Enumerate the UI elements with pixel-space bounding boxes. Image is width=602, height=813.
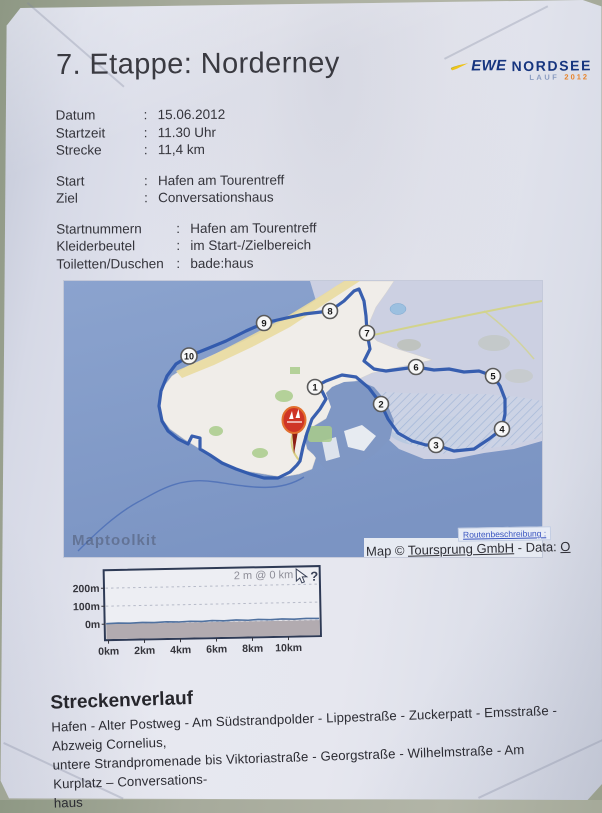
info-value: 11.30 Uhr: [158, 123, 216, 141]
route-marker-9: 9: [257, 316, 272, 331]
info-row-startzeit: Startzeit : 11.30 Uhr: [56, 123, 316, 142]
logo-brand: EWE: [471, 57, 507, 74]
info-table: Datum : 15.06.2012 Startzeit : 11.30 Uhr…: [56, 105, 317, 272]
info-row-strecke: Strecke : 11,4 km: [56, 140, 316, 159]
info-row-ziel: Ziel : Conversationshaus: [56, 188, 316, 207]
swoosh-icon: [450, 58, 469, 74]
info-value: bade:haus: [190, 254, 253, 272]
toursprung-link[interactable]: Toursprung GmbH: [408, 540, 515, 558]
x-axis-label-6km: 6km: [206, 643, 227, 655]
data-source-link[interactable]: O: [560, 539, 570, 554]
info-colon: :: [144, 141, 158, 159]
marker-number: 4: [499, 425, 505, 436]
info-row-startnummern: Startnummern : Hafen am Tourentreff: [56, 219, 316, 238]
route-marker-4: 4: [495, 422, 510, 437]
info-colon: :: [144, 172, 158, 190]
marker-number: 6: [413, 363, 418, 374]
info-label: Datum: [56, 106, 144, 124]
info-label: Strecke: [56, 141, 144, 159]
route-marker-2: 2: [374, 397, 389, 412]
marker-number: 5: [490, 372, 496, 383]
info-label: Toiletten/Duschen: [56, 255, 176, 273]
info-value: Hafen am Tourentreff: [190, 219, 316, 237]
route-marker-6: 6: [409, 360, 424, 375]
info-value: 11,4 km: [158, 141, 205, 159]
route-marker-10: 10: [181, 348, 197, 364]
attribution-prefix: Map ©: [366, 543, 408, 559]
marker-number: 3: [433, 441, 438, 452]
marker-number: 7: [364, 329, 369, 340]
info-row-datum: Datum : 15.06.2012: [56, 105, 316, 124]
info-colon: :: [176, 254, 190, 272]
info-label: Kleiderbeutel: [56, 237, 176, 255]
x-axis-label-10km: 10km: [275, 642, 302, 655]
dune-patch: [505, 369, 533, 383]
route-map: 1 2 3 4 5 6 7 8 9 10 Maptoolkit: [64, 281, 542, 557]
park-green: [308, 426, 332, 442]
info-value: Hafen am Tourentreff: [158, 171, 284, 189]
route-marker-5: 5: [486, 369, 501, 384]
info-row-kleiderbeutel: Kleiderbeutel : im Start-/Zielbereich: [56, 236, 316, 255]
info-label: Ziel: [56, 189, 144, 207]
y-axis-label-100m: 100m: [73, 601, 100, 614]
x-axis-label-4km: 4km: [170, 644, 191, 656]
route-marker-3: 3: [429, 438, 444, 453]
marker-number: 10: [184, 352, 194, 362]
route-marker-1: 1: [308, 380, 323, 395]
chart-hover-readout: 2 m @ 0 km: [234, 569, 294, 582]
marker-number: 2: [378, 400, 383, 411]
help-icon: ?: [310, 569, 318, 584]
info-label: Startnummern: [56, 220, 176, 238]
info-colon: :: [144, 189, 158, 207]
marker-number: 9: [261, 319, 266, 330]
page-title: 7. Etappe: Norderney: [56, 47, 340, 82]
info-colon: :: [144, 106, 158, 124]
info-label: Startzeit: [56, 124, 144, 142]
map-watermark: Maptoolkit: [72, 532, 157, 549]
pond: [390, 304, 406, 315]
logo-name: NORDSEE: [511, 57, 592, 74]
attribution-middle: - Data:: [514, 539, 561, 555]
marker-number: 8: [327, 307, 332, 318]
info-value: im Start-/Zielbereich: [190, 236, 311, 254]
info-colon: :: [176, 219, 190, 237]
dune-patch: [397, 339, 421, 351]
info-value: Conversationshaus: [158, 189, 274, 207]
x-axis-label-8km: 8km: [242, 643, 263, 655]
park-green: [209, 426, 223, 436]
park-green: [290, 367, 300, 374]
dune-patch: [478, 335, 510, 351]
route-marker-8: 8: [323, 304, 338, 319]
park-green: [252, 448, 268, 458]
info-colon: :: [176, 237, 190, 255]
info-colon: :: [144, 124, 158, 142]
info-label: Start: [56, 172, 144, 190]
logo-lauf: LAUF: [529, 73, 559, 82]
route-marker-7: 7: [360, 326, 375, 341]
streckenverlauf-section: Streckenverlauf Hafen - Alter Postweg - …: [50, 675, 574, 812]
logo-year: 2012: [564, 72, 589, 81]
park-green: [275, 390, 293, 402]
elevation-chart: 200m 100m 0m 0km 2km 4km 6km 8km 10km 2 …: [59, 563, 327, 664]
y-axis-label-0m: 0m: [85, 619, 100, 631]
ewe-nordsee-lauf-logo: EWE NORDSEE LAUF 2012: [450, 56, 592, 82]
x-axis-label-0km: 0km: [98, 645, 119, 657]
marker-number: 1: [312, 383, 318, 394]
x-axis-label-2km: 2km: [134, 645, 155, 657]
info-row-start: Start : Hafen am Tourentreff: [56, 171, 316, 190]
info-row-toiletten: Toiletten/Duschen : bade:haus: [56, 254, 316, 273]
y-axis-label-200m: 200m: [73, 583, 100, 596]
info-value: 15.06.2012: [158, 106, 226, 124]
